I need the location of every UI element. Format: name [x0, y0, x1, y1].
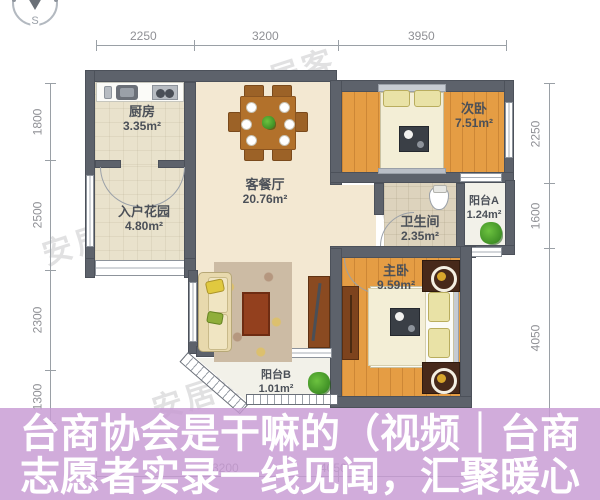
window [86, 175, 94, 247]
kitchen-stove-icon [152, 85, 178, 100]
dim-right-2: 1600 [528, 203, 542, 230]
compass-dot [12, 0, 16, 2]
dim-top-1: 2250 [130, 29, 157, 43]
tick [544, 248, 555, 249]
plate-icon [241, 119, 252, 130]
wall [330, 246, 476, 258]
plate-icon [279, 135, 290, 146]
wall [330, 248, 342, 408]
tick [45, 270, 56, 271]
compass-needle-icon [28, 0, 42, 10]
plate-icon [246, 102, 257, 113]
room-label-balcony-b: 阳台B1.01m² [248, 368, 304, 396]
dim-top-3: 3950 [408, 29, 435, 43]
dim-right-1: 2250 [528, 121, 542, 148]
balcony-a-plant-icon [480, 222, 502, 244]
compass-icon: S [12, 0, 58, 26]
video-title-overlay: 台商协会是干嘛的（视频｜台商 志愿者实录一线见闻，汇聚暖心 [0, 408, 600, 500]
plate-icon [279, 102, 290, 113]
tick [544, 83, 555, 84]
tick [45, 160, 56, 161]
dim-left-4: 1300 [30, 384, 44, 411]
tick [506, 40, 507, 51]
bed-pillow [383, 90, 410, 107]
wall [184, 82, 196, 270]
bed-pillow [428, 328, 450, 358]
coffee-table [242, 292, 270, 336]
dim-right-3: 4050 [528, 325, 542, 352]
wardrobe [342, 286, 359, 360]
dim-top-2: 3200 [252, 29, 279, 43]
tick [544, 183, 555, 184]
nightstand-lamp-icon [422, 362, 460, 394]
tick [338, 40, 339, 51]
bed-footboard [378, 168, 446, 174]
tick [45, 370, 56, 371]
sofa-pillow-green [206, 311, 224, 326]
wall [85, 258, 95, 278]
wall [330, 396, 472, 408]
dim-left-3: 2300 [30, 307, 44, 334]
kitchen-bottles-icon [104, 86, 112, 99]
dimension-line-top [96, 45, 507, 46]
tick [96, 40, 97, 51]
room-label-second-bedroom: 次卧7.51m² [448, 102, 500, 130]
bed-runner [399, 126, 429, 152]
tick [194, 40, 195, 51]
room-label-kitchen: 厨房3.35m² [100, 105, 184, 133]
wall [460, 246, 472, 400]
compass-dot [54, 0, 58, 2]
hallway-floor [332, 185, 376, 248]
bed-runner [390, 308, 420, 336]
wall [374, 183, 384, 215]
window [460, 173, 502, 182]
window [95, 260, 187, 276]
nightstand-lamp-icon [422, 260, 460, 292]
window [505, 102, 513, 158]
wall [330, 80, 342, 185]
tv-cabinet [308, 276, 330, 348]
plate-icon [246, 135, 257, 146]
dimension-line-left [50, 83, 51, 423]
room-label-living-dining: 客餐厅20.76m² [218, 178, 312, 206]
video-title-line2: 志愿者实录一线见闻，汇聚暖心 [0, 456, 600, 499]
dimension-line-right [549, 83, 550, 428]
dining-chair [295, 112, 308, 132]
room-label-master-bedroom: 主卧9.59m² [368, 264, 424, 292]
table-plant-icon [262, 116, 275, 129]
room-label-bathroom: 卫生间2.35m² [378, 215, 462, 243]
bed-pillow [428, 292, 450, 322]
bed-pillow [414, 90, 441, 107]
room-label-balcony-a: 阳台A1.24m² [462, 194, 506, 222]
floorplan-image: 安居客 安居客 安居客 安居客 S [0, 0, 600, 500]
balcony-b-plant-icon [308, 372, 330, 394]
compass-south-label: S [30, 15, 39, 27]
kitchen-sink-icon [116, 85, 138, 100]
window [189, 282, 197, 342]
wall [85, 70, 337, 82]
plate-icon [284, 119, 295, 130]
dim-left-2: 2500 [30, 202, 44, 229]
room-label-entrance-garden: 入户花园4.80m² [98, 205, 190, 233]
dim-left-1: 1800 [30, 109, 44, 136]
wall [505, 180, 515, 255]
video-title-line1: 台商协会是干嘛的（视频｜台商 [0, 413, 600, 456]
tick [45, 83, 56, 84]
